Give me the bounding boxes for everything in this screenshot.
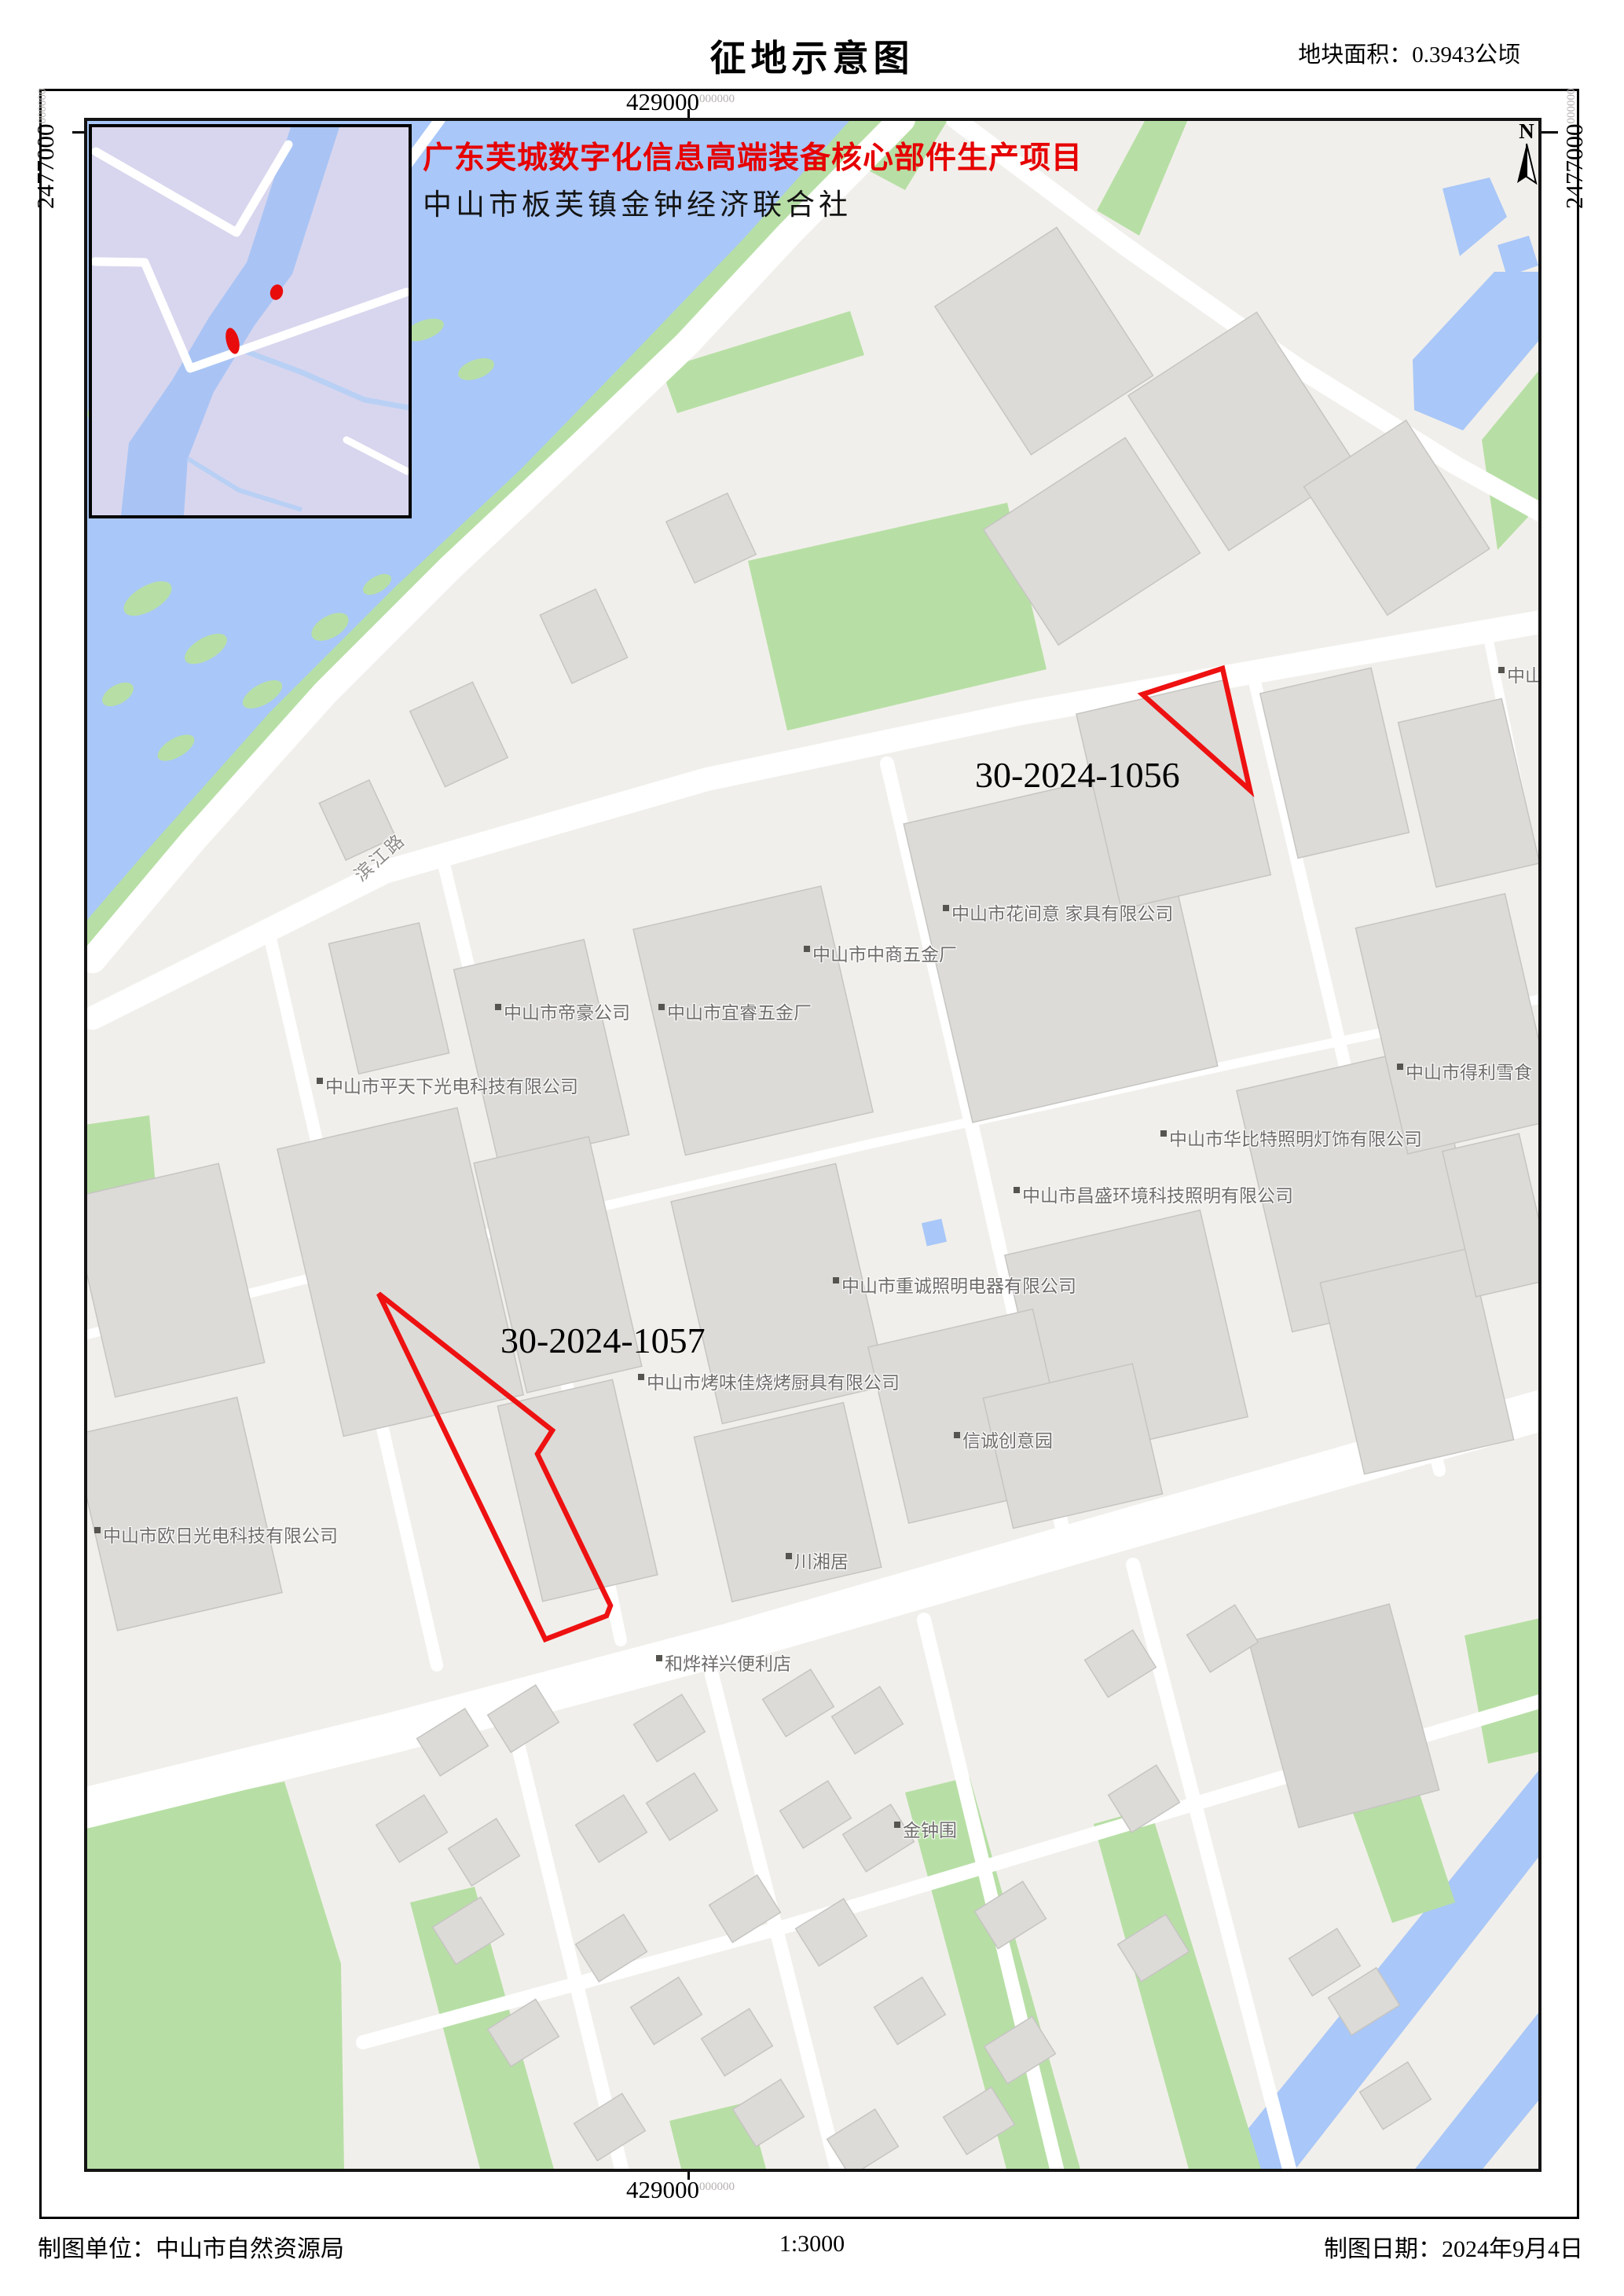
map-label-pingtianxia: 中山市平天下光电科技有限公司 [317,1077,578,1097]
map-label-edge-partial: 中山 [1498,666,1542,686]
poi-marker-icon [1014,1187,1020,1193]
coord-top-easting: 429000000000 [626,90,735,114]
coord-value: 2477000 [31,124,59,210]
north-label: N [1503,121,1542,142]
map-label-changsheng: 中山市昌盛环境科技照明有限公司 [1014,1186,1293,1206]
area-note: 地块面积：0.3943公顷 [1298,36,1520,69]
poi-marker-icon [894,1822,900,1828]
map-label-heye: 和烨祥兴便利店 [656,1654,791,1674]
map-label-huabite: 中山市华比特照明灯饰有限公司 [1160,1130,1422,1149]
inset-svg [92,127,409,515]
poi-marker-icon [495,1004,501,1010]
poi-marker-icon [656,1655,662,1661]
map-label-ouri: 中山市欧日光电科技有限公司 [94,1526,338,1546]
poi-marker-icon [638,1374,644,1380]
poi-marker-icon [94,1527,101,1533]
project-name: 广东芙城数字化信息高端装备核心部件生产项目 [423,134,1083,178]
parcel-label-1057: 30-2024-1057 [500,1320,706,1361]
coord-sub: 000000 [1565,89,1578,124]
north-arrow: N [1503,121,1542,190]
map-label-yirui: 中山市宜睿五金厂 [658,1003,812,1023]
coord-bottom-easting: 429000000000 [626,2177,735,2202]
poi-marker-icon [658,1004,665,1010]
coord-left-northing: 2477000000000 [33,89,57,210]
coord-sub: 000000 [699,93,735,105]
map-label-zhongcheng: 中山市重诚照明电器有限公司 [833,1276,1076,1296]
poi-marker-icon [1498,667,1505,673]
tick-right [1542,131,1558,134]
map-label-jinzhongwei: 金钟围 [894,1821,957,1840]
map-label-zhongshang: 中山市中商五金厂 [804,945,957,965]
poi-marker-icon [1397,1064,1403,1070]
coord-value: 429000 [626,2176,699,2203]
map-label-delixue: 中山市得利雪食 [1397,1063,1532,1082]
north-needle-icon [1515,142,1538,186]
map-label-chuanxiangju: 川湘居 [786,1552,849,1572]
coord-sub: 000000 [36,89,49,124]
map-label-xincheng: 信诚创意园 [954,1431,1053,1451]
project-applicant: 中山市板芙镇金钟经济联合社 [423,181,852,223]
parcel-label-1056: 30-2024-1056 [975,754,1180,796]
poi-marker-icon [943,905,949,911]
tick-left [72,131,85,134]
poi-marker-icon [954,1432,960,1438]
map-label-kaoweijia: 中山市烤味佳烧烤厨具有限公司 [638,1373,900,1393]
poi-marker-icon [1160,1130,1167,1137]
poi-marker-icon [804,946,810,952]
coord-value: 2477000 [1560,124,1588,210]
map-sheet: 征地示意图 地块面积：0.3943公顷 429000000000 4290000… [0,0,1624,2296]
coord-sub: 000000 [699,2181,735,2193]
map-label-huajianyi: 中山市花间意 家具有限公司 [943,904,1173,924]
poi-marker-icon [317,1078,323,1084]
poi-marker-icon [786,1553,792,1559]
map-label-dihao: 中山市帝豪公司 [495,1003,630,1023]
footer-date: 制图日期：2024年9月4日 [1324,2229,1583,2264]
inset-overview-map [89,124,412,518]
poi-marker-icon [833,1277,839,1283]
coord-right-northing: 2477000000000 [1562,89,1586,210]
